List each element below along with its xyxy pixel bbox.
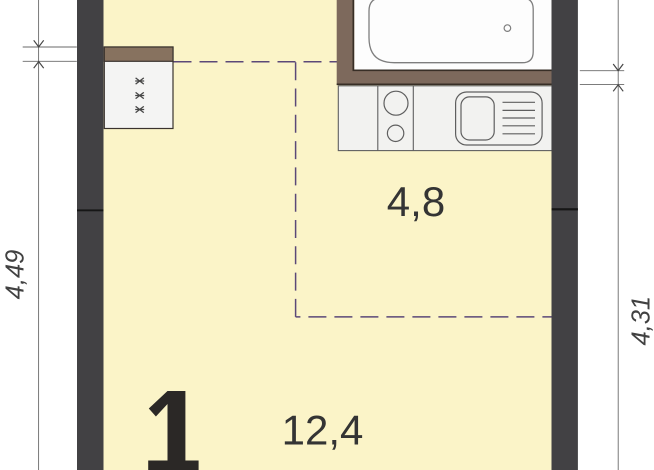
svg-text:4,49: 4,49 xyxy=(1,250,29,300)
svg-text:4,31: 4,31 xyxy=(628,296,654,346)
svg-text:4,8: 4,8 xyxy=(387,178,445,225)
svg-text:12,4: 12,4 xyxy=(282,407,364,454)
